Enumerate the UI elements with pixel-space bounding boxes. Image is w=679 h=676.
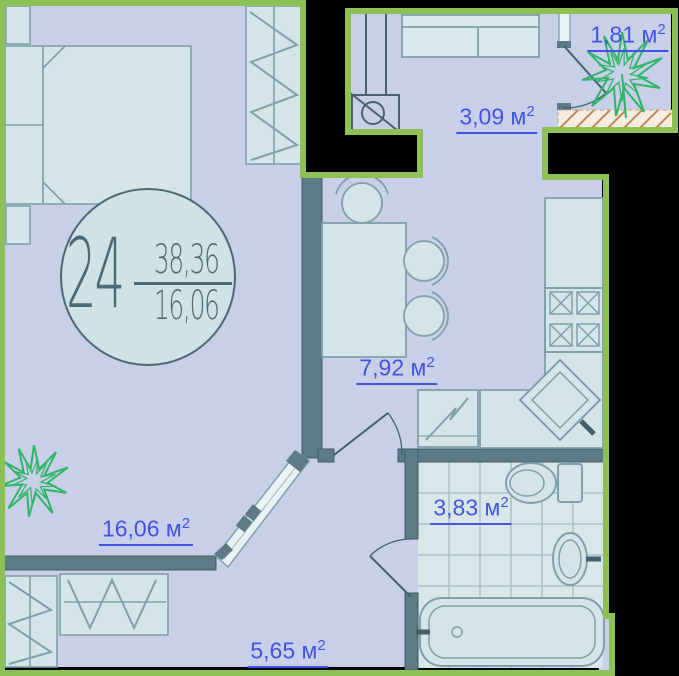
label-hallway-area: 5,65 м2: [247, 638, 328, 668]
label-living-room-area: 16,06 м2: [99, 516, 193, 546]
unit-number: 24: [66, 226, 123, 322]
ventilation-shaft-icon: [349, 92, 402, 134]
label-balcony-area: 1,81 м2: [587, 22, 668, 52]
label-kitchen-area: 7,92 м2: [356, 355, 437, 385]
bathtub-icon: [416, 598, 604, 666]
wardrobe-icon: [60, 574, 168, 635]
unit-badge: 24 38,36 16,06: [60, 188, 236, 366]
unit-living-area: 16,06: [134, 285, 232, 326]
dining-table: [322, 223, 406, 357]
label-bathroom-area: 3,83 м2: [430, 495, 511, 525]
wardrobe-icon: [246, 6, 302, 164]
unit-total-area: 38,36: [134, 240, 232, 285]
label-entry-hall-area: 3,09 м2: [456, 104, 537, 134]
fridge-icon: [418, 390, 478, 447]
unit-areas-fraction: 38,36 16,06: [134, 240, 232, 326]
sofa-icon: [402, 15, 539, 57]
bed-icon: [5, 46, 191, 204]
nightstand-icon: [6, 206, 30, 244]
wardrobe-icon: [5, 576, 57, 667]
toilet-icon: [506, 463, 582, 503]
nightstand-icon: [6, 6, 30, 44]
floor-plan: 24 38,36 16,06 1,81 м2 3,09 м2 7,92 м2 3…: [0, 0, 679, 676]
